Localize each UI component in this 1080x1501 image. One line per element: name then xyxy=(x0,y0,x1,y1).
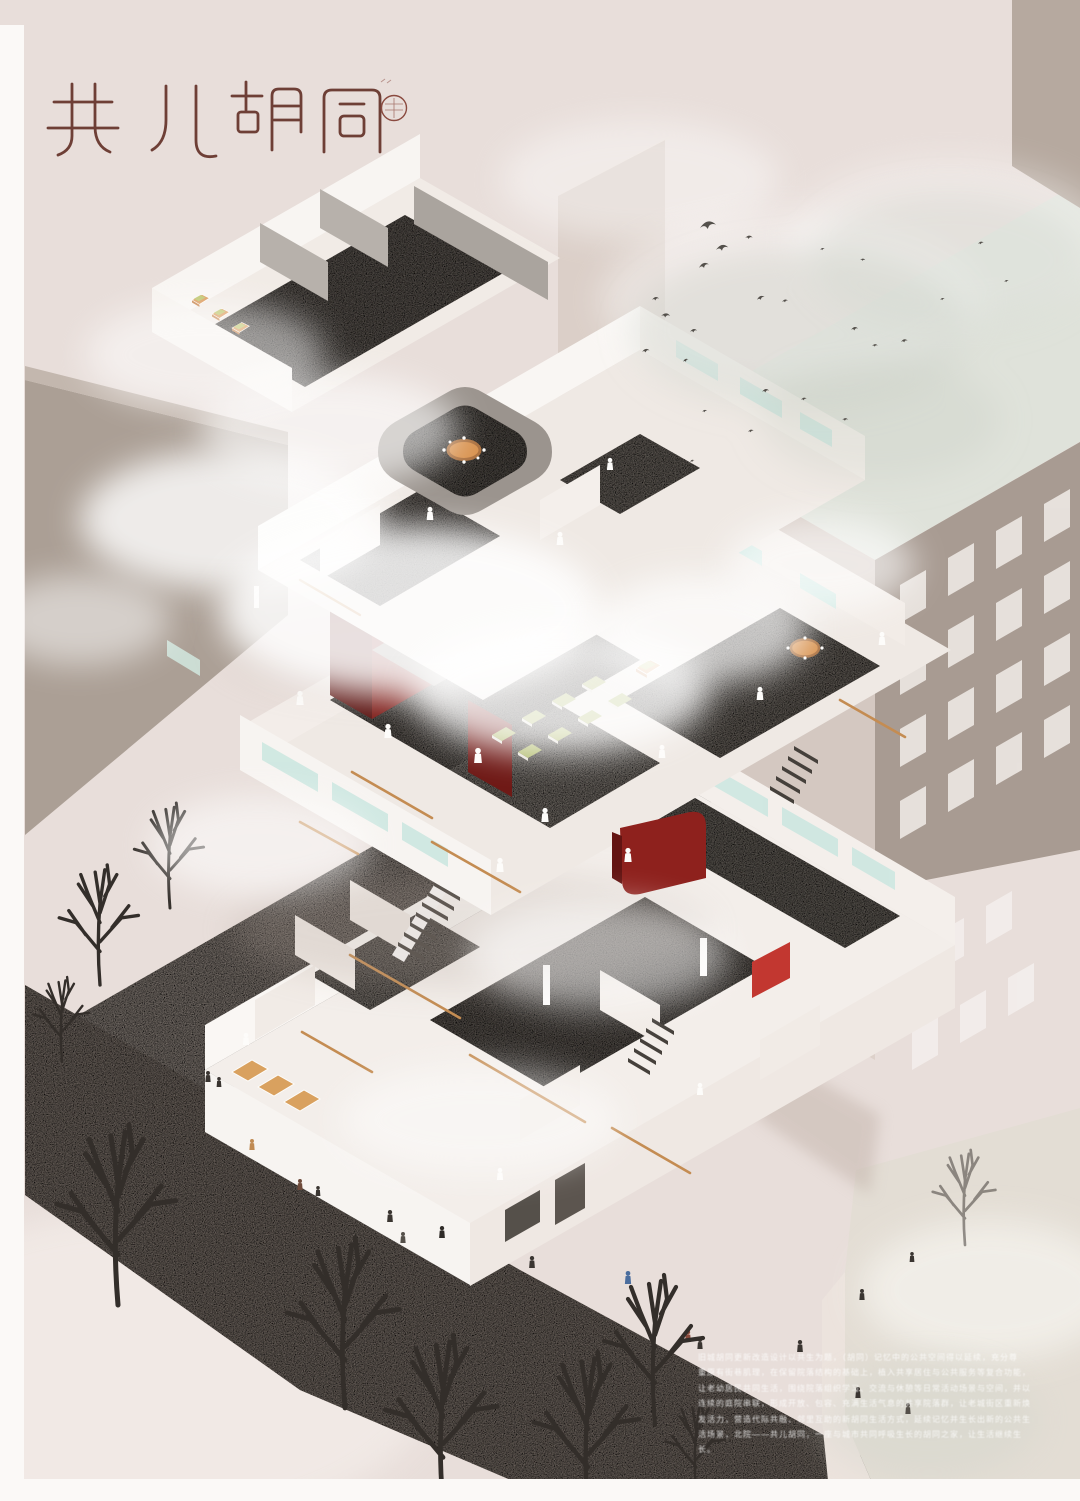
frame-left xyxy=(0,25,24,1501)
caption-line: 重原有街巷肌理，在保留院落结构的基础上，植入共享居住与公共服务等复合功能， xyxy=(698,1365,1076,1380)
caption-paragraph: 旧城胡同更新改造设计以共生为题，（胡同）记忆中的公共空间得以延续，充分尊 重原有… xyxy=(698,1350,1076,1458)
caption-line: 发活力，营造代际共融、邻里互助的新胡同生活方式，延续记忆并生长出新的公共生 xyxy=(698,1412,1076,1427)
caption-line: 长。 xyxy=(698,1442,1076,1457)
frame-bottom xyxy=(0,1479,1080,1501)
caption-line: 旧城胡同更新改造设计以共生为题，（胡同）记忆中的公共空间得以延续，充分尊 xyxy=(698,1350,1076,1365)
caption-line: 活场景，北院——共儿胡同，一座与城市共同呼吸生长的胡同之家，让生活继续生 xyxy=(698,1427,1076,1442)
poster-artwork xyxy=(0,0,1080,1501)
caption-line: 让老幼居民共同生活，围绕院落组织学习、交流与休憩等日常活动场景与空间，并以 xyxy=(698,1381,1076,1396)
caption-line: 连续的庭院串联，形成开放、包容、充满生活气息的共享院落群，让老城街区重新焕 xyxy=(698,1396,1076,1411)
architecture-poster: 共儿胡同 xyxy=(0,0,1080,1501)
